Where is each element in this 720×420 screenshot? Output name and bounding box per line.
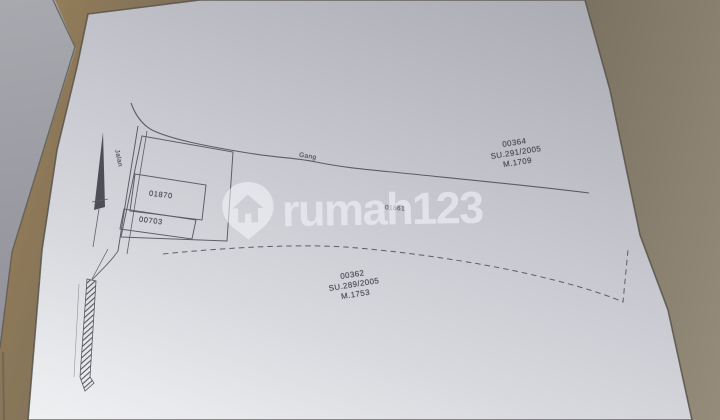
watermark-text: rumah123 xyxy=(282,184,483,232)
home-pin-icon xyxy=(220,180,275,241)
watermark: rumah123 xyxy=(220,177,483,242)
photo-stage: Jalan Gang 01870 00703 01861 00364 SU.29… xyxy=(0,0,720,420)
